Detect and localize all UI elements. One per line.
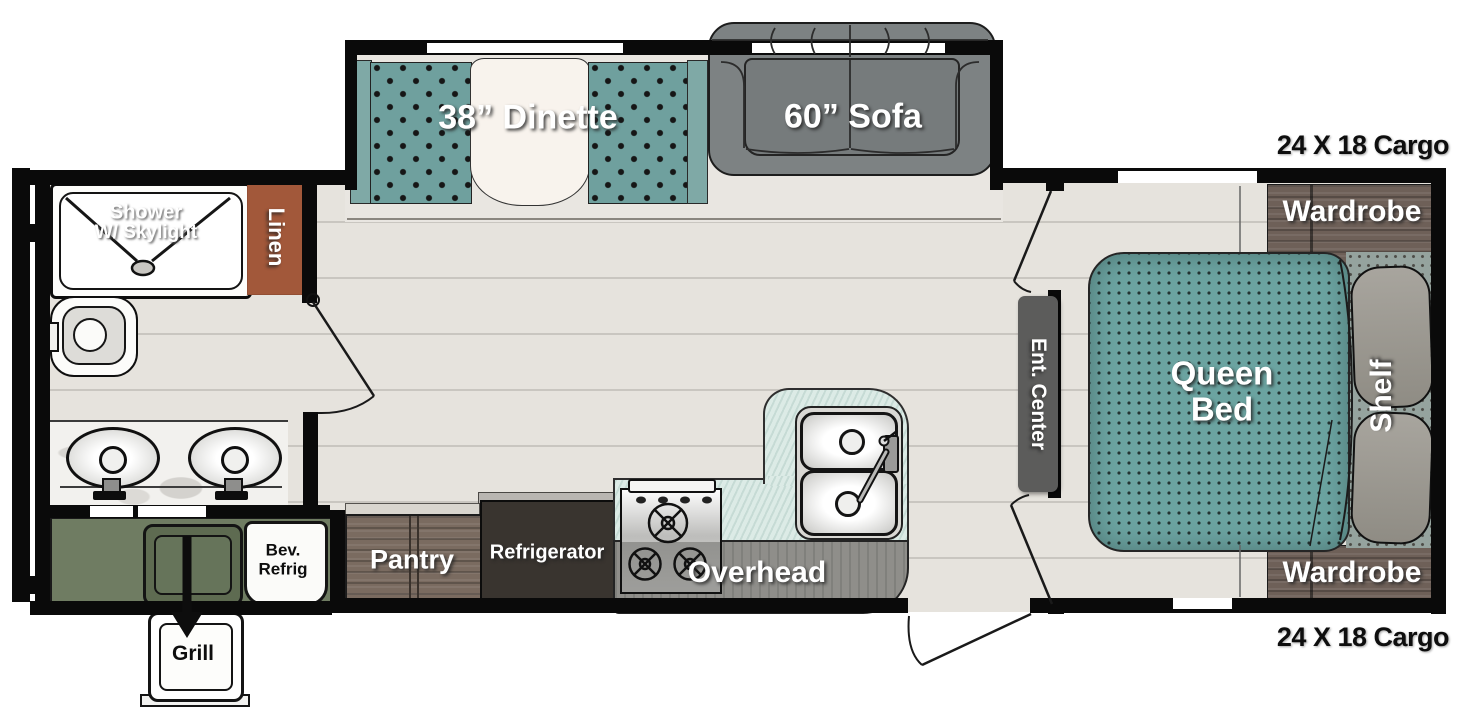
outdoor-slot — [143, 524, 243, 606]
pass-through-1 — [90, 506, 133, 517]
wall-left-of-pantry — [330, 510, 345, 605]
pantry-label: Pantry — [370, 545, 454, 576]
window-dinette — [427, 43, 623, 53]
bedroom-door-stub-bottom — [1048, 600, 1064, 614]
shower-sub-label: W/ Skylight — [95, 222, 197, 244]
bev-refrig-label: Bev. Refrig — [248, 541, 318, 578]
cargo-bottom-label: 24 X 18 Cargo — [1277, 622, 1449, 653]
shelf-label: Shelf — [1365, 359, 1399, 432]
slideout-left-wall — [345, 42, 357, 190]
wall-bottom-right — [1030, 598, 1446, 613]
ent-center-label: Ent. Center — [1026, 338, 1050, 450]
cargo-door-bottom — [1173, 598, 1232, 609]
bath-wall-stub — [303, 412, 318, 517]
bedroom-door-stub-top — [1046, 173, 1064, 191]
dinette-label: 38” Dinette — [438, 99, 618, 138]
outdoor-slot-inner — [154, 535, 232, 595]
sink-basin-bottom — [800, 470, 898, 536]
sink-basin-top — [800, 412, 898, 471]
wardrobe-top-label: Wardrobe — [1283, 195, 1422, 229]
faucet-base-right — [215, 491, 248, 500]
wall-bottom-mid — [330, 598, 908, 613]
overhead-label: Overhead — [688, 556, 826, 590]
toilet-seat-circle — [73, 318, 107, 352]
grill-label: Grill — [172, 642, 214, 666]
sink-drain-bottom — [835, 491, 861, 517]
bumper-stub-bottom — [30, 576, 36, 594]
stove-handle — [628, 479, 716, 493]
sofa-label: 60” Sofa — [784, 98, 922, 137]
dinette-back-right — [687, 60, 708, 204]
wall-left — [35, 170, 50, 615]
pass-through-2 — [138, 506, 206, 517]
floorplan-canvas: 38” Dinette 60” Sofa 24 X 18 Cargo 24 X … — [0, 0, 1463, 708]
queen-bed-label: Queen Bed — [1137, 356, 1307, 429]
window-sofa — [752, 43, 945, 53]
wall-top-left — [30, 170, 348, 185]
drain-left — [99, 446, 127, 474]
wardrobe-bottom-label: Wardrobe — [1283, 556, 1422, 590]
linen-label: Linen — [263, 208, 289, 267]
wall-right — [1431, 168, 1446, 614]
faucet-base-left — [93, 491, 126, 500]
bumper-stub-top — [30, 224, 36, 242]
sink-drain-top — [839, 429, 865, 455]
wall-bottom-left — [30, 601, 332, 615]
toilet — [50, 296, 138, 377]
cargo-top-label: 24 X 18 Cargo — [1277, 130, 1449, 161]
cargo-door-top — [1118, 171, 1257, 183]
refrigerator-label: Refrigerator — [490, 542, 604, 565]
front-bumper-bar — [12, 168, 30, 602]
drain-right — [221, 446, 249, 474]
bath-wall — [302, 170, 317, 303]
